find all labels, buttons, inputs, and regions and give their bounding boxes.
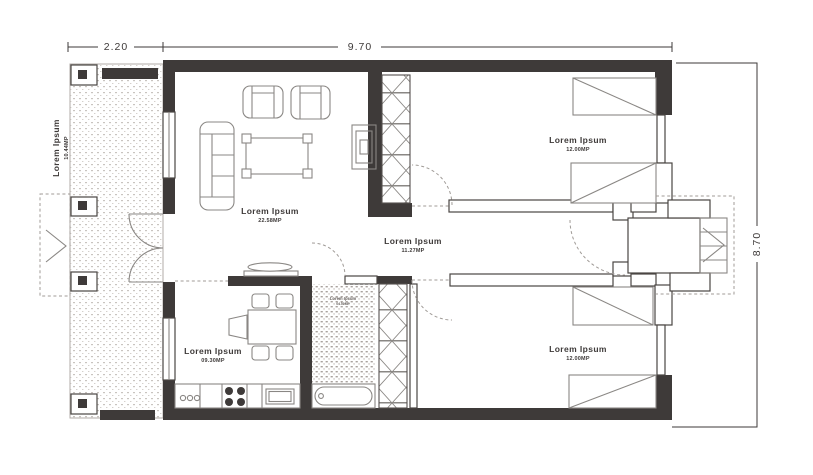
wall-left [163, 282, 175, 318]
bed-icon [569, 375, 656, 408]
wall-kitchen-hall [228, 276, 308, 286]
planter [670, 273, 710, 291]
dimension-building-width: 9.70 [348, 41, 372, 53]
pergola-beam-icon [100, 410, 155, 420]
armchair-icon [243, 86, 283, 118]
bed-icon [571, 163, 656, 203]
wall-pier [655, 375, 672, 408]
bathtub-icon [312, 384, 375, 408]
shaft-hatch [379, 284, 407, 408]
wall-right-thin [657, 325, 665, 375]
wall-right-thin [657, 115, 665, 163]
chair-icon [252, 346, 269, 360]
living-furniture [200, 86, 376, 210]
floor-plan: 2.20 9.70 8.70 Lorem Ipsum 10.44MP Lorem… [0, 0, 813, 475]
wall-pier [655, 72, 672, 115]
wall-left [163, 178, 175, 214]
terrace-post-icon [71, 65, 97, 85]
bathroom-area: 04.50MP [336, 302, 350, 306]
terrace-floor [70, 64, 163, 418]
console-icon [244, 263, 298, 276]
door-swing-bedroom-bottom [412, 280, 452, 320]
window-icon [163, 318, 175, 380]
terrace-post-icon [71, 197, 97, 216]
chair-icon [276, 294, 293, 308]
terrace-post-icon [71, 394, 97, 414]
planter [668, 200, 710, 218]
windows [163, 112, 175, 380]
sofa-icon [200, 122, 234, 210]
entrance-steps-icon [700, 218, 727, 273]
armchair-icon [291, 86, 330, 119]
wall-bottom [163, 408, 672, 420]
terrace-area: 10.44MP [64, 136, 70, 160]
coffee-table-icon [242, 134, 312, 178]
wall-segment [631, 274, 656, 286]
wall-top [163, 60, 672, 72]
terrace-label: Lorem Ipsum [51, 119, 61, 177]
dimension-terrace-width: 2.20 [104, 41, 128, 53]
bathroom-label: Lorem Ipsum [330, 296, 357, 301]
kitchen-counter [175, 384, 300, 408]
bedroom-bottom-area: 12.00MP [566, 356, 590, 362]
chair-icon [276, 346, 293, 360]
wall-bath-top [345, 276, 377, 284]
wall-shaft [368, 72, 382, 217]
shaft-hatch [382, 75, 410, 203]
chair-icon [229, 315, 247, 339]
bedroom-top-area: 12.00MP [566, 147, 590, 153]
chair-icon [252, 294, 269, 308]
kitchen-label: Lorem Ipsum [184, 346, 242, 356]
wall-left [163, 380, 175, 408]
dining-table-icon [248, 310, 296, 344]
living-room-label: Lorem Ipsum [241, 206, 299, 216]
pergola-beam-icon [102, 68, 158, 79]
living-room-area: 22.58MP [258, 218, 282, 224]
kitchen-area: 09.30MP [201, 358, 225, 364]
dimension-building-depth: 8.70 [751, 232, 763, 256]
vestibule [628, 218, 700, 273]
wall-shaft2-cap [374, 276, 412, 284]
bedroom-bottom-label: Lorem Ipsum [549, 344, 607, 354]
wall-bedroom2-left [410, 284, 417, 408]
wall-hall-bedroom-bottom [450, 274, 613, 286]
hallway-label: Lorem Ipsum [384, 236, 442, 246]
hallway-area: 11.27MP [401, 248, 424, 254]
door-swing-bathroom [312, 243, 345, 276]
door-swing-bedroom-top [412, 165, 452, 205]
bedroom-top-label: Lorem Ipsum [549, 135, 607, 145]
window-icon [163, 112, 175, 178]
steps-direction-chevron-icon [46, 230, 66, 262]
bed-icon [573, 287, 653, 325]
terrace-post-icon [71, 272, 97, 291]
wall-left [163, 60, 175, 112]
floor-plan-canvas: 2.20 9.70 8.70 Lorem Ipsum 10.44MP Lorem… [0, 0, 813, 475]
bed-icon [573, 78, 656, 115]
wall-kitchen-bath [300, 276, 312, 408]
wall-pier-white [655, 163, 672, 203]
wall-shaft-cap [368, 203, 412, 217]
tv-unit-icon [352, 125, 376, 169]
